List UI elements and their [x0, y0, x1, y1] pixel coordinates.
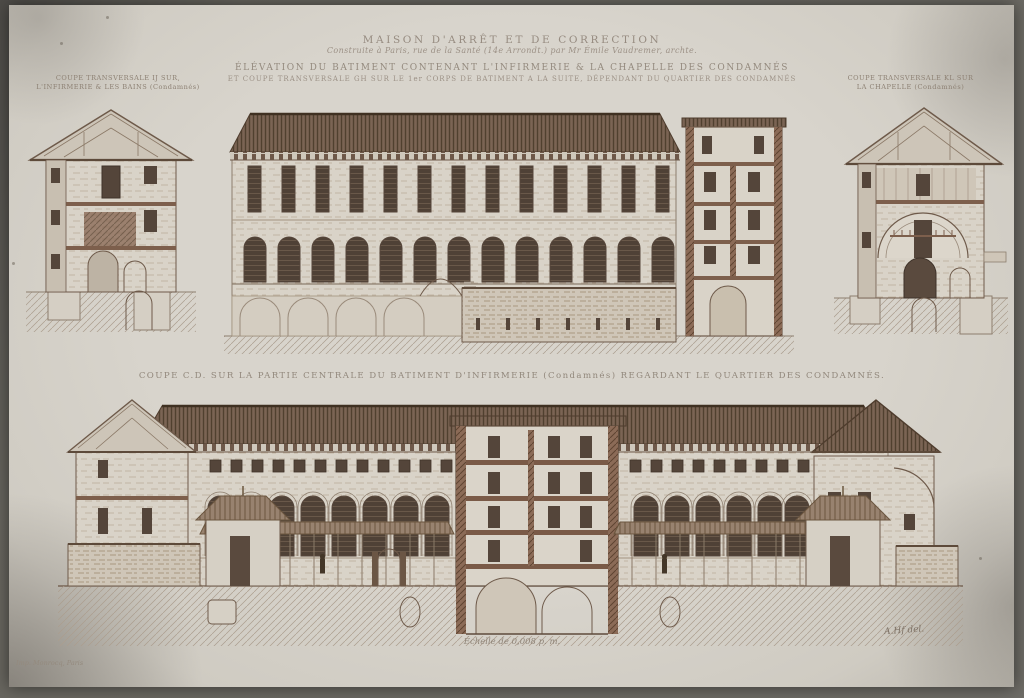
dentil-course	[230, 152, 680, 160]
caption-coupe-cd: COUPE C.D. SUR LA PARTIE CENTRALE DU BAT…	[0, 371, 1024, 383]
footing	[960, 296, 992, 334]
scanned-plate: MAISON D'ARRÊT ET DE CORRECTION Construi…	[0, 0, 1024, 698]
lower-terrace-wall	[232, 296, 464, 336]
gable-roof	[30, 110, 192, 160]
paper-speck	[12, 262, 15, 265]
drawing-coupe-cd	[58, 396, 963, 646]
ground-arch	[904, 258, 936, 298]
square-window-row-right	[630, 460, 809, 472]
boundary-wall-left	[68, 544, 200, 586]
drawing-coupe-ij	[24, 104, 199, 336]
dome-niche	[914, 220, 932, 258]
coupe-gh-section	[682, 118, 786, 336]
plate-subtitle: Construite à Paris, rue de la Santé (14e…	[0, 46, 1024, 57]
gable-roof	[846, 108, 1002, 164]
floor-slab	[858, 200, 984, 204]
scale-note: Échelle de 0,008 p. m.	[372, 637, 652, 648]
caption-coupe-kl-line2: LA CHAPELLE (Condamnés)	[808, 83, 1013, 92]
footing	[48, 290, 80, 320]
paper-speck	[106, 16, 109, 19]
upper-niche	[102, 166, 120, 198]
caption-coupe-ij: COUPE TRANSVERSALE IJ SUR, L'INFIRMERIE …	[18, 74, 218, 92]
caption-coupe-kl-line1: COUPE TRANSVERSALE KL SUR	[848, 74, 974, 82]
basement-vault	[476, 578, 536, 634]
front-stone-wall	[462, 288, 676, 342]
footing	[850, 296, 880, 324]
central-section	[450, 416, 626, 634]
paper-speck	[979, 557, 982, 560]
human-figure	[320, 554, 325, 574]
heading-line1: ÉLÉVATION DU BATIMENT CONTENANT L'INFIRM…	[0, 62, 1024, 74]
caption-coupe-ij-line2: L'INFIRMERIE & LES BAINS (Condamnés)	[18, 83, 218, 92]
ground-arch	[88, 251, 118, 292]
caption-coupe-kl: COUPE TRANSVERSALE KL SUR LA CHAPELLE (C…	[808, 74, 1013, 92]
human-figure	[662, 554, 667, 574]
boundary-wall-right	[896, 546, 958, 586]
main-roof	[230, 114, 680, 152]
stair-block	[84, 212, 136, 246]
drawing-coupe-kl	[832, 102, 1010, 336]
printer-imprint: Imp. Monrocq, Paris	[16, 659, 176, 668]
drawing-elevation-infirmerie	[224, 106, 794, 356]
caption-coupe-ij-line1: COUPE TRANSVERSALE IJ SUR,	[56, 74, 180, 82]
